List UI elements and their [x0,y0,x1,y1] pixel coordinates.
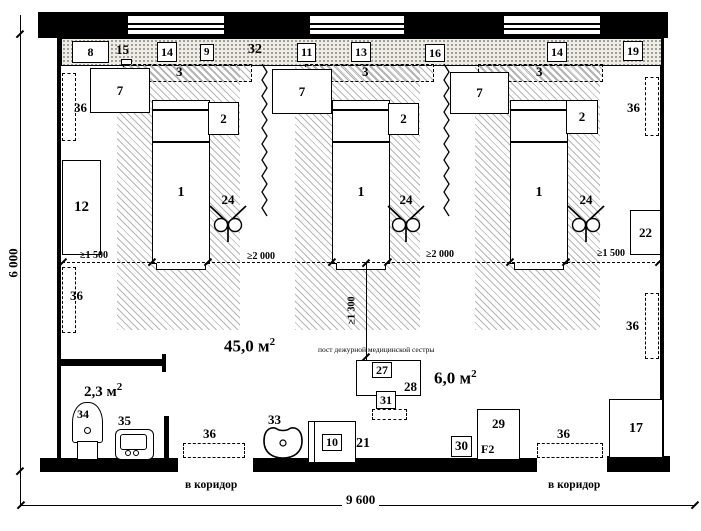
curtain-1 [256,64,270,216]
band-item-8: 8 [72,41,109,63]
clearance-vertical: ≥1 300 [347,297,358,325]
nurse-desk-28-label: 28 [404,379,417,395]
bed-pillow-line [333,141,389,143]
sanitary-area-value: 2,3 м [84,384,117,400]
band-item-14b-label: 14 [551,45,563,60]
bed-3-footboard [514,263,564,270]
sanitary-partition-cap [162,354,166,372]
band-item-11: 11 [297,43,316,62]
bottom-wall-middle [253,458,537,472]
band-item-9: 9 [200,44,214,61]
radiator-36-left-bottom-label: 36 [70,289,83,302]
radiator-36-right-bottom [645,293,659,359]
window-1 [128,16,224,34]
fridge-29-label: 29 [478,416,519,432]
band-item-14b: 14 [547,42,567,62]
overbed-frame-3-label: 3 [536,65,543,78]
dim-tick [691,501,699,509]
curtain-2 [438,64,452,216]
bed-1-footboard [156,263,206,270]
cabinet-10: 10 [308,421,356,463]
band-item-13: 13 [351,42,371,62]
band-item-19-label: 19 [627,44,639,59]
bed-1-label: 1 [153,185,209,201]
bottom-wall-left [40,458,178,472]
band-item-11-label: 11 [301,45,312,60]
mat-36-right-label: 36 [557,427,570,440]
bedside-table-2-1-label: 2 [220,111,227,127]
mat-36-left-label: 36 [203,427,216,440]
basin-35-bowl [120,434,147,450]
wardrobe-17-label: 17 [629,421,643,437]
bed-2-label: 1 [333,185,389,201]
wardrobe-12: 12 [62,160,101,255]
basin-35 [115,429,154,460]
sanitary-partition-h [60,359,165,366]
nurse-item-27-label: 27 [376,363,388,378]
overbed-frame-2-label: 3 [362,65,369,78]
nurse-post-caption: пост дежурной медицинской сестры [318,345,434,354]
band-item-32: 32 [248,43,262,57]
bed-3-label: 1 [511,185,567,201]
overbed-frame-1-label: 3 [176,65,183,78]
corridor-label-left: в коридор [185,479,237,491]
lamp-24-1-label: 24 [222,192,236,207]
clearance-right: ≥1 500 [597,248,625,259]
post-area-label: 6,0 м2 [434,368,477,389]
sink-33 [261,423,305,460]
bed-3: 1 [510,100,568,264]
band-item-8-label: 8 [88,45,94,60]
bedside-table-2-2: 2 [388,103,419,135]
lamp-24-3-label: 24 [580,192,594,207]
label-21: 21 [356,437,370,451]
bed-pillow-line [153,141,209,143]
band-item-16: 16 [425,44,445,62]
toilet-flush-dot [84,427,91,434]
floor-plan: 8 15 14 9 32 11 13 16 14 19 3 3 3 7 7 7 … [0,0,701,531]
nurse-chair-31: 31 [376,391,396,409]
window-glazing-line [310,23,404,25]
sanitary-area-label: 2,3 м2 [84,381,122,401]
bedside-table-2-1: 2 [208,102,239,135]
bed-2: 1 [332,100,390,264]
width-dim-label: 9 600 [342,492,379,508]
bed-headboard-line [333,109,389,111]
mat-36-right [537,443,603,458]
clearance-mid1: ≥2 000 [247,251,275,262]
nurse-chair-31-label: 31 [380,393,392,408]
cabinet-7-1-label: 7 [117,83,124,99]
window-glazing-line [310,28,404,30]
cabinet-10-number: 10 [326,435,338,450]
cabinet-7-2-label: 7 [299,84,306,100]
fridge-29: 29 F2 [477,409,520,460]
corridor-label-right: в коридор [548,479,600,491]
toilet-34: 34 [72,402,103,443]
band-item-19: 19 [623,41,643,61]
bedside-table-2-3: 2 [566,100,598,134]
radiator-36-right-bottom-label: 36 [626,319,639,332]
window-2 [310,16,404,34]
band-item-15: 15 [116,43,129,56]
window-glazing-line [504,28,600,30]
window-glazing-line [128,28,224,30]
sanitary-area-sup: 2 [117,381,123,393]
bed-headboard-line [511,109,567,111]
bed-headboard-line [153,109,209,111]
window-3 [504,16,600,34]
cabinet-7-2: 7 [272,69,332,114]
lamp-24-1: 24 [206,192,250,244]
bedside-table-2-2-label: 2 [400,111,407,127]
left-wall [57,38,61,458]
basin-35-label: 35 [118,414,131,427]
cabinet-7-3-label: 7 [476,85,483,101]
band-item-9-label: 9 [204,46,210,60]
sanitary-partition-v [164,416,169,459]
toilet-34-label: 34 [77,408,89,420]
cabinet-7-1: 7 [90,68,150,113]
height-dim-label: 6 000 [6,248,22,277]
radiator-36-right-top-label: 36 [627,101,640,114]
clearance-mid2: ≥2 000 [426,249,454,260]
item-30: 30 [451,436,472,457]
ward-area-value: 45,0 м [224,337,270,356]
band-item-13-label: 13 [355,45,367,60]
band-item-32-label: 32 [248,42,262,57]
basin-35-tap [125,450,131,456]
cabinet-22-label: 22 [639,225,652,241]
basin-35-tap [133,450,139,456]
band-item-16-label: 16 [429,46,441,61]
band-item-15-label: 15 [116,42,129,57]
cabinet-22: 22 [630,210,661,255]
wardrobe-12-label: 12 [74,199,89,216]
nurse-item-27: 27 [372,362,392,378]
cabinet-10-inner-line [314,422,315,462]
lamp-24-2-label: 24 [400,192,414,207]
ward-area-label: 45,0 м2 [224,336,275,357]
radiator-36-right-top [645,77,659,136]
post-area-sup: 2 [471,368,477,380]
wardrobe-17: 17 [609,399,663,458]
bed-2-footboard [336,263,386,270]
cabinet-10-label: 10 [322,434,342,451]
item-30-label: 30 [455,438,468,454]
post-area-value: 6,0 м [434,369,471,388]
mat-36-left [183,443,245,458]
radiator-36-left-top-label: 36 [74,101,87,114]
bed-1: 1 [152,100,210,264]
bedside-table-2-3-label: 2 [579,109,586,125]
nurse-stool [372,409,407,420]
window-glazing-line [504,23,600,25]
lamp-24-3: 24 [564,192,608,244]
toilet-34-pedestal [77,441,98,460]
ward-area-sup: 2 [270,336,276,348]
cabinet-7-3: 7 [450,72,509,114]
band-item-14a: 14 [157,42,177,62]
bottom-wall-right [607,456,670,472]
window-glazing-line [128,23,224,25]
fridge-29-mark: F2 [481,442,494,457]
lamp-24-2: 24 [384,192,428,244]
clearance-left: ≥1 500 [80,250,108,261]
band-item-14a-label: 14 [161,45,173,60]
bed-pillow-line [511,141,567,143]
